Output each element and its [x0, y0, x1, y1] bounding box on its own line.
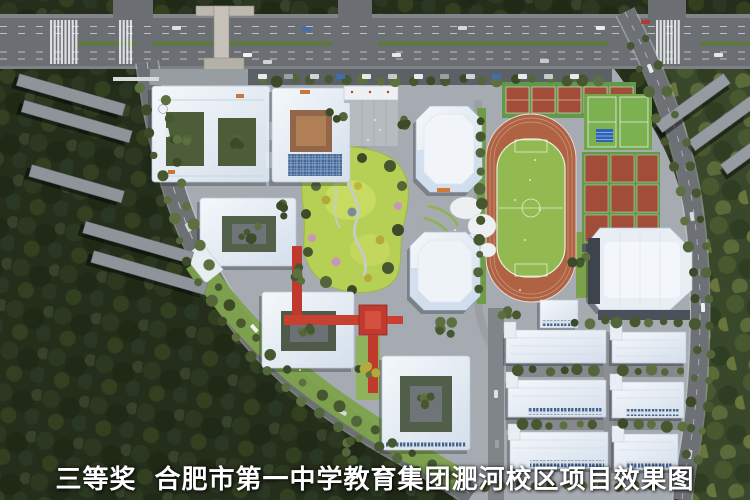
award-label: 三等奖	[55, 464, 136, 494]
service-building	[537, 300, 578, 331]
aerial-rendering: 三等奖合肥市第一中学教育集团淝河校区项目效果图	[0, 0, 750, 500]
dormitory-blocks	[503, 322, 686, 473]
campus-masterplan-scene	[0, 0, 750, 500]
dome	[159, 105, 168, 114]
caption: 三等奖合肥市第一中学教育集团淝河校区项目效果图	[0, 459, 750, 496]
project-title: 合肥市第一中学教育集团淝河校区项目效果图	[155, 464, 695, 494]
bleachers	[596, 129, 613, 142]
library-building	[413, 106, 482, 196]
auditorium-building	[407, 232, 480, 314]
training-pitches	[584, 94, 652, 150]
glass-roof	[288, 154, 342, 176]
soccer-field	[497, 139, 565, 277]
running-track	[477, 108, 576, 304]
